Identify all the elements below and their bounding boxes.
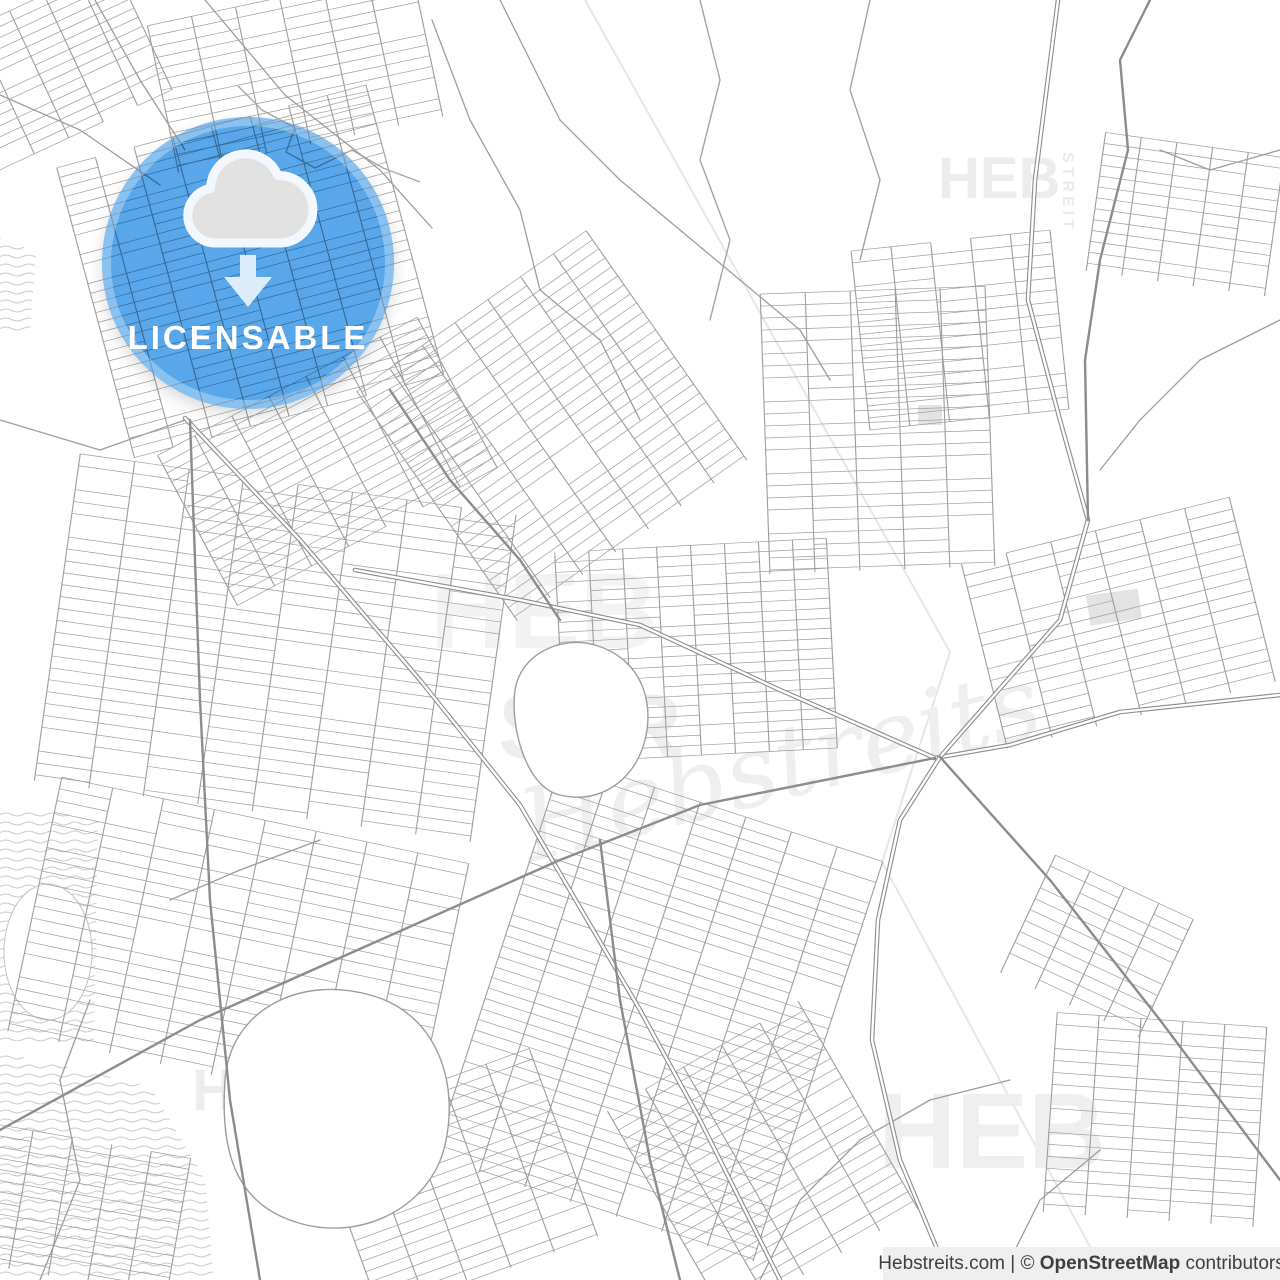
district	[1000, 855, 1193, 1037]
download-arrow-icon	[219, 255, 277, 309]
watermark-text: STREIT	[1059, 152, 1076, 233]
attribution-suffix: contributors	[1180, 1253, 1280, 1275]
cloud-download-icon	[168, 143, 328, 251]
district	[1086, 132, 1280, 296]
district	[760, 286, 995, 574]
watermark-text: HEB	[938, 146, 1060, 211]
map-stage: HEBSTREITHEBSTREITHEBHEBSTRHebstreits LI…	[0, 0, 1280, 1280]
licensable-badge: LICENSABLE	[102, 117, 394, 409]
osm-link[interactable]: OpenStreetMap	[1040, 1253, 1180, 1275]
arrow-shape	[224, 255, 272, 307]
badge-label: LICENSABLE	[128, 321, 369, 354]
attribution-bar: Hebstreits.com | © OpenStreetMap contrib…	[883, 1247, 1280, 1280]
pond-blob	[4, 884, 92, 1020]
attribution-source: Hebstreits.com | ©	[878, 1253, 1039, 1275]
cloud-shape	[188, 154, 313, 243]
badge-content: LICENSABLE	[102, 117, 394, 409]
